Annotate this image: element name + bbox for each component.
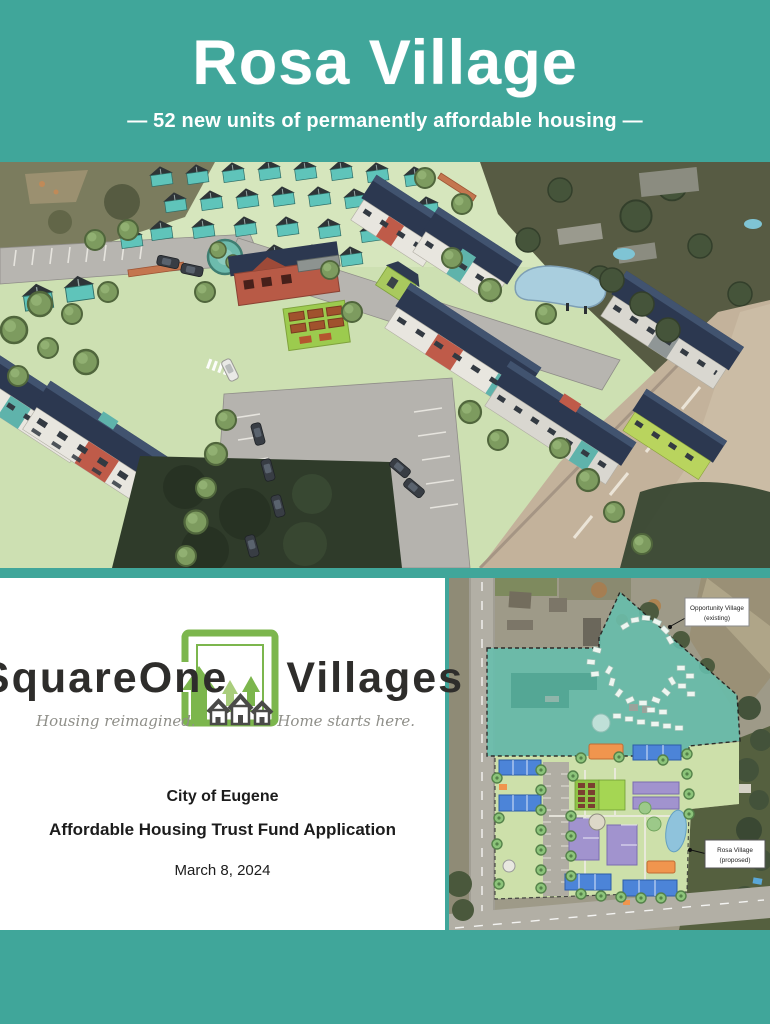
card-application-line: Affordable Housing Trust Fund Applicatio… [0,820,445,840]
info-card: SquareOne [0,578,445,930]
header: Rosa Village — 52 new units of permanent… [0,0,770,162]
label-proposed-line1: Rosa Village [717,847,753,854]
label-existing-line1: Opportunity Village [690,605,744,612]
logo-tagline-left: Housing reimagined. [36,712,196,730]
logo-wordmark-villages: Villages [286,654,464,703]
logo-tagline-right: Home starts here. [277,712,415,730]
logo-wordmark-squareone: SquareOne [0,654,228,703]
label-existing-line2: (existing) [704,615,730,622]
card-date: March 8, 2024 [0,862,445,879]
application-text-block: City of Eugene Affordable Housing Trust … [0,788,445,879]
page-background: { "header": { "title": "Rosa Village", "… [0,0,770,1024]
squareone-villages-logo: SquareOne [0,628,445,748]
page-subtitle: — 52 new units of permanently affordable… [0,110,770,133]
card-org-line: City of Eugene [0,788,445,806]
community-garden [283,300,350,350]
hero-rendering-image [0,162,770,568]
site-plan-image: Opportunity Village (existing) Rosa Vill… [449,578,770,930]
page-title: Rosa Village [0,0,770,96]
label-proposed-line2: (proposed) [720,857,751,864]
